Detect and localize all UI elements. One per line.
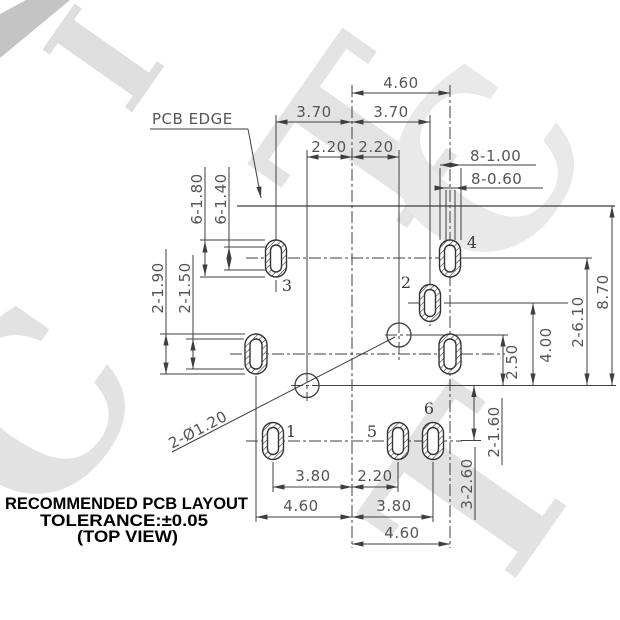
drawing-canvas: I T C C T <box>0 0 620 620</box>
dim-top-inner-left: 2.20 <box>311 138 346 156</box>
pad-5-label: 5 <box>367 422 377 441</box>
pad-5-inner <box>393 428 404 455</box>
dim-top-right: 3.70 <box>373 103 408 121</box>
title-block: RECOMMENDED PCB LAYOUT TOLERANCE:±0.05 (… <box>5 494 249 546</box>
title-line-3: (TOP VIEW) <box>77 527 178 546</box>
dim-top-overall: 4.60 <box>383 74 418 92</box>
dim-top-inner-right: 2.20 <box>358 138 393 156</box>
dim-bot-r2-right: 3.80 <box>376 497 411 515</box>
dim-right-circles: 2.50 <box>503 344 521 379</box>
pad-mid-left-inner <box>250 339 262 369</box>
pad-2-label: 2 <box>401 273 411 292</box>
dim-right-overall: 8.70 <box>594 274 612 309</box>
dim-side-height-outer: 6-1.80 <box>188 173 206 224</box>
pad-4-label: 4 <box>467 233 477 252</box>
dim-right-pads34: 2-6.10 <box>569 296 587 347</box>
dim-bot-r1-left: 3.80 <box>295 467 330 485</box>
pad-mid-right-inner <box>444 339 456 369</box>
dim-bot-r2-left: 4.60 <box>283 497 318 515</box>
dim-lowright-inner: 2-1.60 <box>485 406 503 457</box>
dim-mid-height-inner: 2-1.50 <box>176 262 194 313</box>
pad-3-label: 3 <box>282 276 292 295</box>
pcb-layout-drawing: I T C C T <box>0 0 620 620</box>
dim-bot-r3: 4.60 <box>384 524 419 542</box>
pad-1-inner <box>268 428 279 455</box>
dim-lowright-outer: 3-2.60 <box>458 458 476 509</box>
dim-pads-width-outer: 8-1.00 <box>470 147 521 165</box>
dim-mid-height-outer: 2-1.90 <box>149 262 167 313</box>
dim-right-pad2: 4.00 <box>537 327 555 362</box>
pcb-edge-label: PCB EDGE <box>152 110 233 128</box>
left-dimensions: 6-1.80 6-1.40 2-1.90 2-1.50 <box>149 167 230 374</box>
pad-6-label: 6 <box>424 399 434 418</box>
dim-side-height-inner: 6-1.40 <box>212 173 230 224</box>
pad-6-inner <box>428 428 439 455</box>
pad-2-inner <box>425 290 436 317</box>
dim-bot-r1-right: 2.20 <box>357 467 392 485</box>
pad-1-label: 1 <box>286 422 296 441</box>
pad-3-inner <box>271 245 282 272</box>
dim-top-left: 3.70 <box>296 103 331 121</box>
dim-pads-width-inner: 8-0.60 <box>471 170 522 188</box>
pad-4-inner <box>445 245 456 272</box>
